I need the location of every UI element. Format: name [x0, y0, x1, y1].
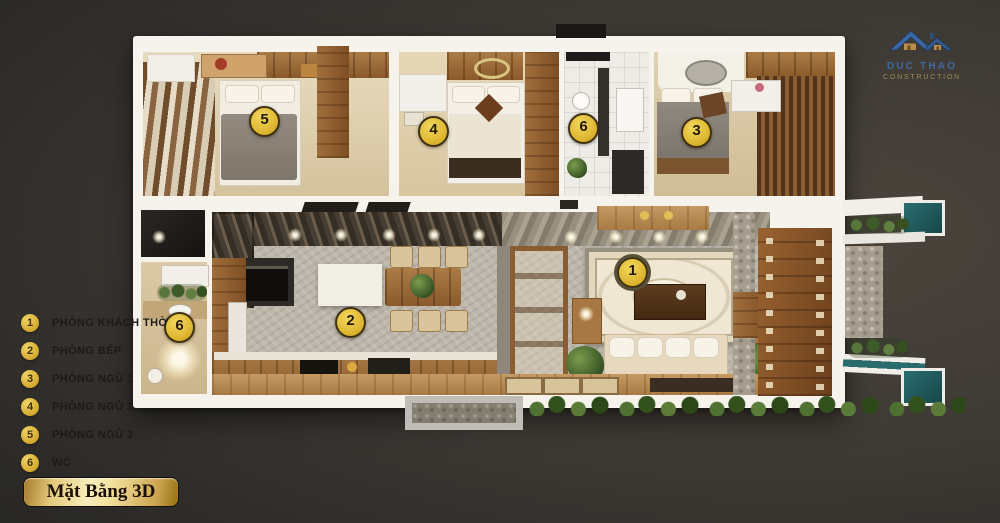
room-marker-3: 3 [681, 117, 712, 148]
legend: 1 PHÒNG KHÁCH THỜ 2 PHÒNG BẾP 3 PHÒNG NG… [21, 314, 168, 482]
dark-runner [650, 378, 746, 392]
legend-item: 2 PHÒNG BẾP [21, 342, 168, 360]
house-roof-icon [889, 28, 955, 54]
dining-chair [445, 310, 468, 332]
altar-decor [664, 211, 673, 220]
legend-item-label: PHÒNG NGỦ 3 [52, 429, 133, 441]
bedroom5-nightstand [301, 64, 317, 77]
bedroom4-foot-bench [449, 158, 521, 178]
logo-name: DUC THAO [878, 61, 966, 72]
bedroom5-tall-wardrobe [317, 46, 349, 158]
wc-top-sink [616, 88, 644, 132]
legend-item-label: PHÒNG NGỦ 1 [52, 373, 133, 385]
side-table-lamp [578, 306, 594, 322]
title-badge: Mặt Bằng 3D [24, 478, 178, 506]
bedroom5-pillow [261, 85, 295, 103]
page-title: Mặt Bằng 3D [47, 481, 156, 503]
bedroom4-ring-light [474, 58, 510, 79]
bedroom3-flowers [755, 83, 764, 92]
wc-top-toilet [572, 92, 590, 110]
sofa-pillow [693, 337, 719, 358]
hedge-strip [528, 396, 965, 416]
bedroom3-wood-ceiling [746, 52, 835, 78]
legend-number-badge: 2 [21, 342, 39, 360]
spotlight [472, 228, 486, 242]
spotlight [334, 228, 348, 242]
legend-item: 4 PHÒNG NGỦ 2 [21, 398, 168, 416]
bedroom4-wood-strip [525, 52, 559, 196]
bedroom5-bowl-decor [215, 58, 227, 70]
coffee-table-decor [676, 290, 686, 300]
sofa-pillow [637, 337, 663, 358]
legend-number-badge: 5 [21, 426, 39, 444]
partition-column [497, 246, 510, 376]
spotlight [288, 228, 302, 242]
door-opening [560, 200, 578, 209]
bedroom5-bench [147, 54, 195, 82]
bedroom4-desk [399, 74, 447, 112]
entry-path [845, 246, 883, 338]
legend-item-label: PHÒNG NGỦ 2 [52, 401, 133, 413]
partition-shelf [510, 246, 568, 386]
company-logo: DUC THAO CONSTRUCTION [878, 28, 966, 81]
legend-item: 1 PHÒNG KHÁCH THỜ [21, 314, 168, 332]
wc-bottom-plants [157, 284, 207, 301]
room-marker-5: 5 [249, 106, 280, 137]
bedroom3-bed-frame [657, 158, 729, 174]
spotlight [427, 228, 441, 242]
coffee-table [634, 284, 706, 320]
doormat [543, 377, 581, 395]
kitchen-counter-top-edge [214, 352, 510, 360]
sofa-pillow [609, 337, 635, 358]
room-marker-6-top: 6 [568, 113, 599, 144]
entry-canopy [556, 24, 606, 38]
stove [368, 358, 410, 375]
wc-top-plant [567, 158, 587, 178]
window-box [405, 396, 523, 430]
room-marker-1: 1 [617, 257, 648, 288]
fridge [228, 302, 247, 358]
planter-bottom-plants [848, 338, 908, 358]
spotlight [382, 228, 396, 242]
bedroom4-pillow [452, 86, 485, 103]
bedroom5-dresser [201, 54, 267, 78]
door-glass-slots [816, 236, 824, 390]
bedroom5-pillow [225, 85, 259, 103]
kitchen-island [318, 264, 382, 306]
legend-item: 3 PHÒNG NGỦ 1 [21, 370, 168, 388]
wc-top-shower-bar [566, 52, 610, 61]
legend-number-badge: 6 [21, 454, 39, 472]
dining-chair [418, 246, 441, 268]
sofa-pillow [665, 337, 691, 358]
wc-top-dark-mat [612, 150, 644, 194]
floor-plan-presentation: 5 4 6 3 1 2 6 1 PHÒNG KHÁCH THỜ 2 PHÒNG … [0, 0, 1000, 523]
legend-number-badge: 3 [21, 370, 39, 388]
legend-item: 6 WC [21, 454, 168, 472]
spotlight [564, 230, 578, 244]
bedroom3-ceiling-lamp [685, 60, 727, 86]
spotlight [695, 230, 709, 244]
legend-number-badge: 1 [21, 314, 39, 332]
legend-item-label: PHÒNG BẾP [52, 345, 122, 357]
doormat [581, 377, 619, 395]
kitchen-feature-wall [212, 212, 502, 246]
cabinet-light [152, 230, 166, 244]
planter-top-plants [847, 216, 909, 234]
legend-number-badge: 4 [21, 398, 39, 416]
legend-item-label: PHÒNG KHÁCH THỜ [52, 317, 168, 329]
altar-decor [640, 211, 649, 220]
spotlight [609, 230, 623, 244]
legend-item: 5 PHÒNG NGỦ 3 [21, 426, 168, 444]
dining-centerpiece [410, 274, 434, 298]
spotlight [652, 230, 666, 244]
door-glass-slots [766, 238, 773, 388]
dining-chair [390, 246, 413, 268]
dining-chair [390, 310, 413, 332]
legend-item-label: WC [52, 457, 71, 469]
room-marker-2: 2 [335, 307, 366, 338]
pot-decor [347, 362, 357, 372]
doormat [505, 377, 543, 395]
dining-chair [445, 246, 468, 268]
laundry-cabinet [141, 210, 205, 257]
dining-chair [418, 310, 441, 332]
oven-front [246, 266, 288, 301]
wc-top-partition [598, 68, 609, 156]
room-marker-6-bottom: 6 [164, 312, 195, 343]
room-marker-4: 4 [418, 116, 449, 147]
altar-cabinet [597, 206, 709, 230]
logo-subtitle: CONSTRUCTION [878, 74, 966, 81]
bedroom5-wardrobe [143, 62, 215, 196]
planter-top-glass [901, 200, 945, 236]
